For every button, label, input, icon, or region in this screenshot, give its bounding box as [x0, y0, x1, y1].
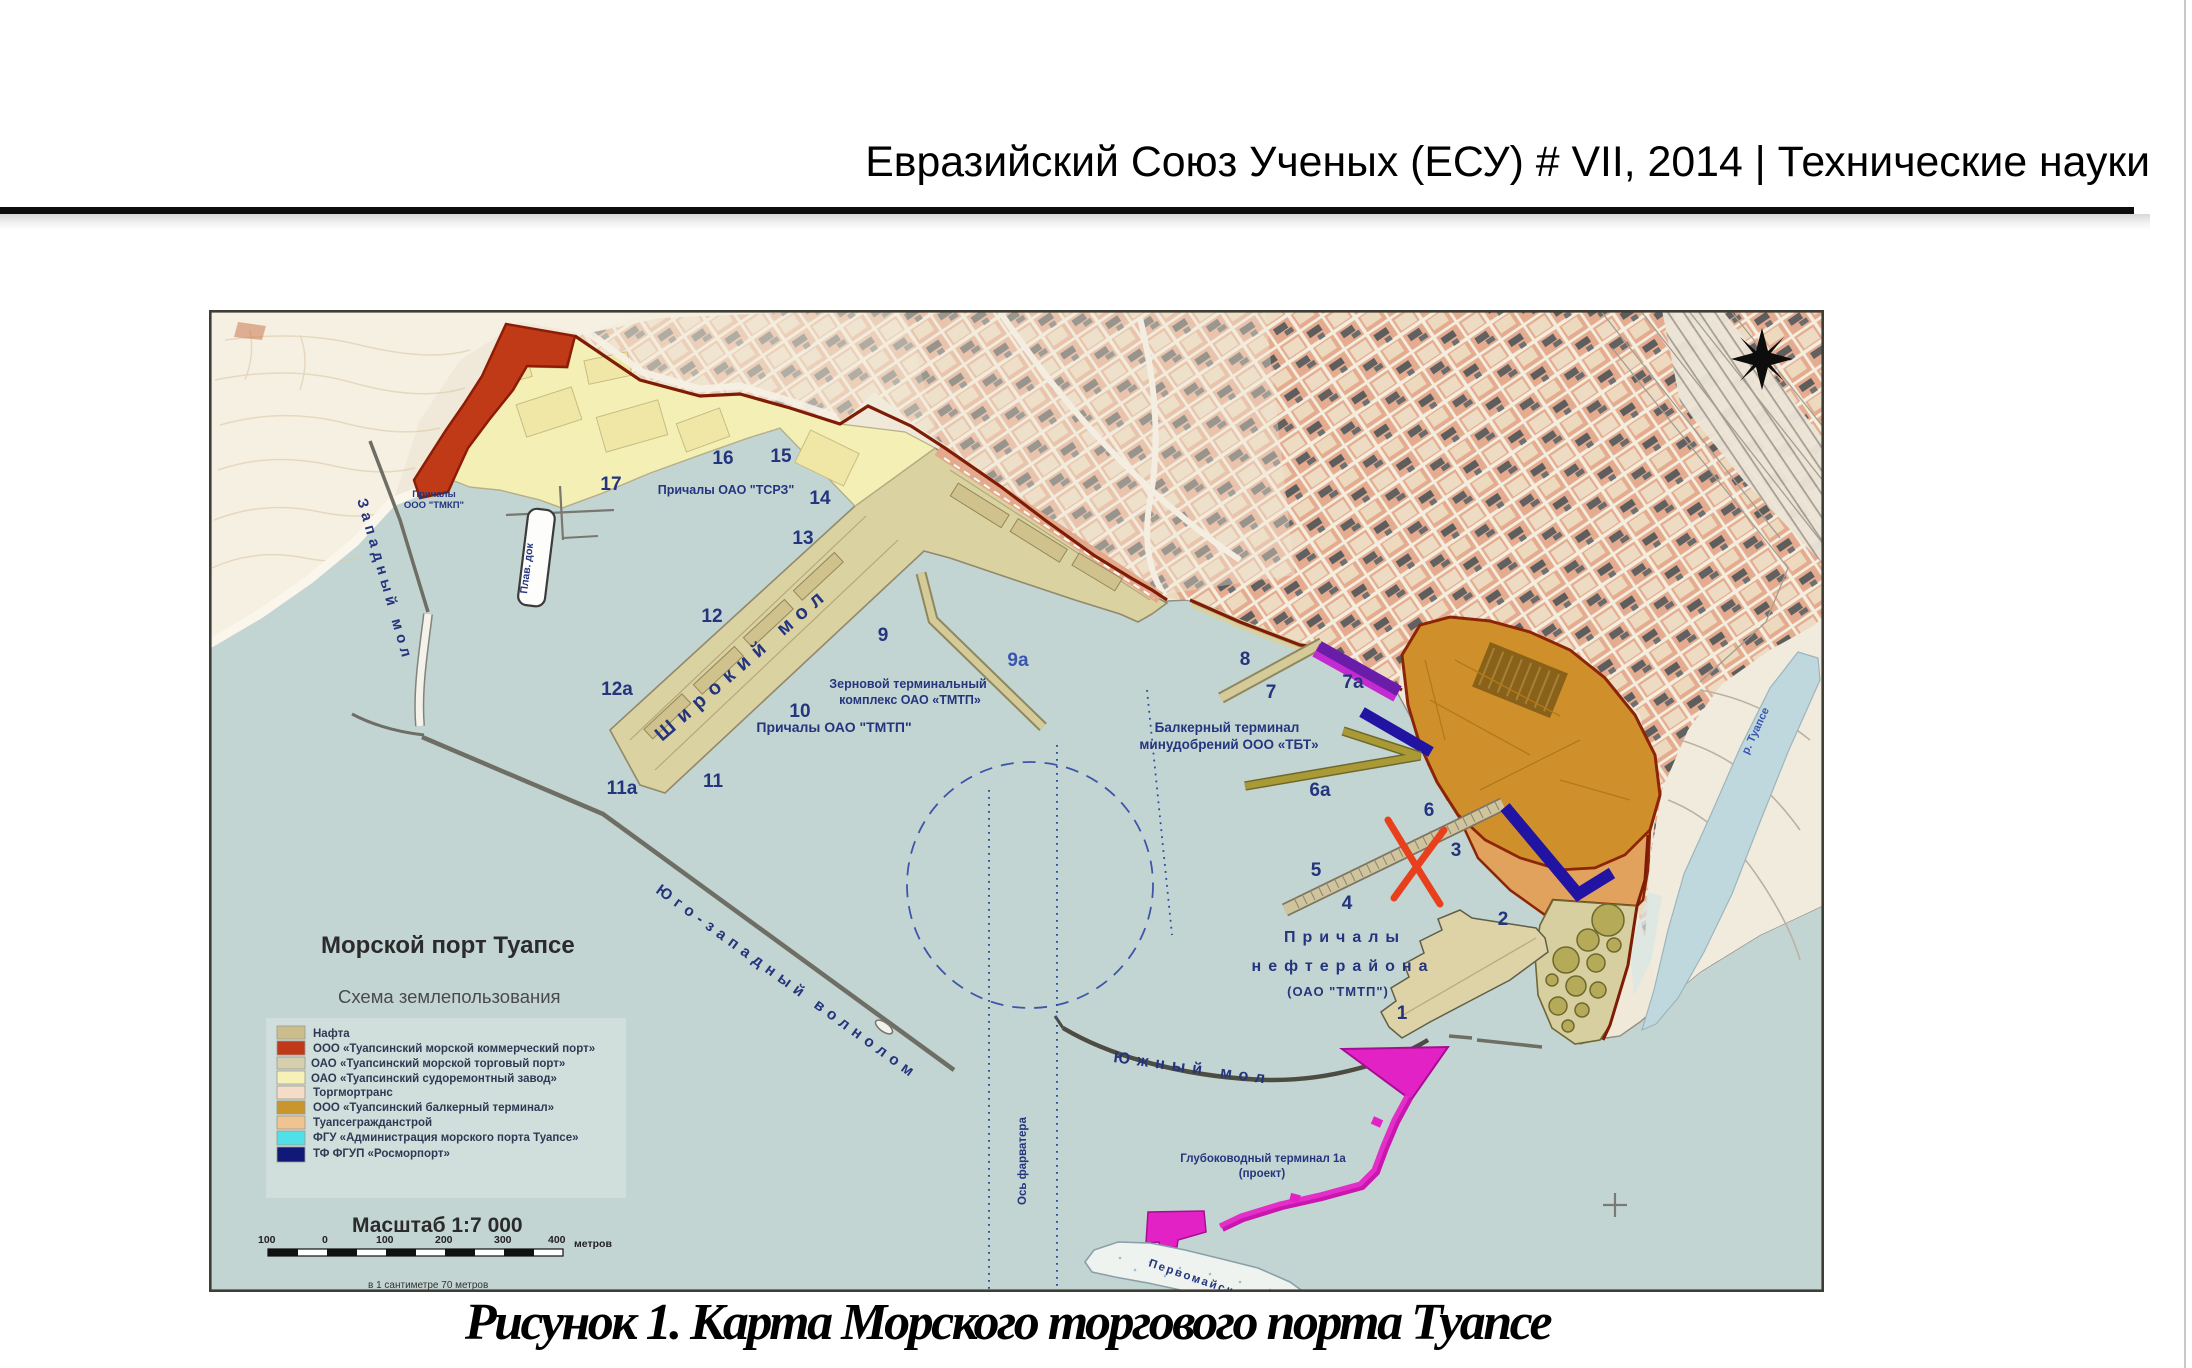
svg-text:1: 1: [1397, 1003, 1408, 1024]
svg-text:4: 4: [1342, 893, 1353, 914]
svg-text:в 1 сантиметре 70 метров: в 1 сантиметре 70 метров: [368, 1280, 488, 1291]
svg-text:7: 7: [1266, 682, 1277, 703]
svg-text:300: 300: [494, 1234, 512, 1246]
svg-text:ОАО «Туапсинский судоремонтный: ОАО «Туапсинский судоремонтный завод»: [311, 1073, 557, 1085]
svg-text:9: 9: [878, 625, 889, 646]
svg-text:400: 400: [548, 1234, 566, 1246]
svg-text:Морской порт Туапсе: Морской порт Туапсе: [321, 932, 575, 959]
svg-text:нефтерайона: нефтерайона: [1252, 958, 1435, 975]
svg-text:минудобрений ООО «ТБТ»: минудобрений ООО «ТБТ»: [1139, 737, 1318, 752]
svg-text:ООО «Туапсинский морской комме: ООО «Туапсинский морской коммерческий по…: [313, 1043, 595, 1055]
svg-text:Схема землепользования: Схема землепользования: [338, 986, 561, 1007]
svg-text:9а: 9а: [1007, 650, 1029, 671]
svg-text:6а: 6а: [1309, 780, 1331, 801]
svg-text:Глубоководный терминал 1а: Глубоководный терминал 1а: [1180, 1153, 1346, 1165]
svg-text:Причалы ОАО "ТСРЗ": Причалы ОАО "ТСРЗ": [658, 483, 795, 497]
svg-text:8: 8: [1240, 649, 1251, 670]
svg-text:Ось фарватера: Ось фарватера: [1017, 1117, 1029, 1205]
svg-text:100: 100: [376, 1234, 394, 1246]
svg-text:12а: 12а: [601, 679, 633, 700]
svg-text:Причалы: Причалы: [1284, 929, 1406, 946]
svg-text:14: 14: [809, 488, 831, 509]
svg-text:11а: 11а: [607, 778, 638, 799]
svg-text:комплекс ОАО «ТМТП»: комплекс ОАО «ТМТП»: [839, 693, 981, 707]
svg-text:Зерновой терминальный: Зерновой терминальный: [829, 677, 986, 691]
svg-text:Причалы ОАО "ТМТП": Причалы ОАО "ТМТП": [756, 719, 911, 735]
svg-text:15: 15: [770, 446, 792, 467]
svg-text:ООО «Туапсинский балкерный тер: ООО «Туапсинский балкерный терминал»: [313, 1102, 554, 1114]
svg-text:7а: 7а: [1342, 672, 1364, 693]
svg-text:(ОАО "ТМТП"): (ОАО "ТМТП"): [1287, 984, 1389, 999]
svg-text:12: 12: [701, 606, 722, 627]
svg-text:17: 17: [600, 474, 621, 495]
svg-text:ООО "ТМКП": ООО "ТМКП": [404, 500, 464, 511]
svg-text:Балкерный терминал: Балкерный терминал: [1155, 720, 1300, 735]
svg-text:13: 13: [792, 528, 813, 549]
svg-text:2: 2: [1498, 909, 1509, 930]
svg-text:0: 0: [322, 1234, 328, 1246]
svg-text:16: 16: [712, 448, 733, 469]
svg-text:6: 6: [1424, 800, 1435, 821]
svg-text:Торгмортранс: Торгмортранс: [313, 1087, 393, 1099]
svg-text:ОАО «Туапсинский морской торго: ОАО «Туапсинский морской торговый порт»: [311, 1058, 565, 1070]
svg-text:ТФ ФГУП «Росморпорт»: ТФ ФГУП «Росморпорт»: [313, 1148, 450, 1160]
svg-text:11: 11: [703, 771, 724, 792]
svg-text:Причалы: Причалы: [412, 489, 455, 500]
svg-text:(проект): (проект): [1239, 1168, 1286, 1180]
svg-text:метров: метров: [574, 1238, 612, 1250]
svg-text:200: 200: [435, 1234, 453, 1246]
svg-text:100: 100: [258, 1234, 276, 1246]
svg-text:ФГУ «Администрация морского по: ФГУ «Администрация морского порта Туапсе…: [313, 1132, 578, 1144]
svg-text:Туапсегражданстрой: Туапсегражданстрой: [313, 1117, 432, 1129]
svg-text:Нафта: Нафта: [313, 1028, 350, 1040]
svg-text:3: 3: [1451, 840, 1462, 861]
svg-text:5: 5: [1311, 860, 1322, 881]
